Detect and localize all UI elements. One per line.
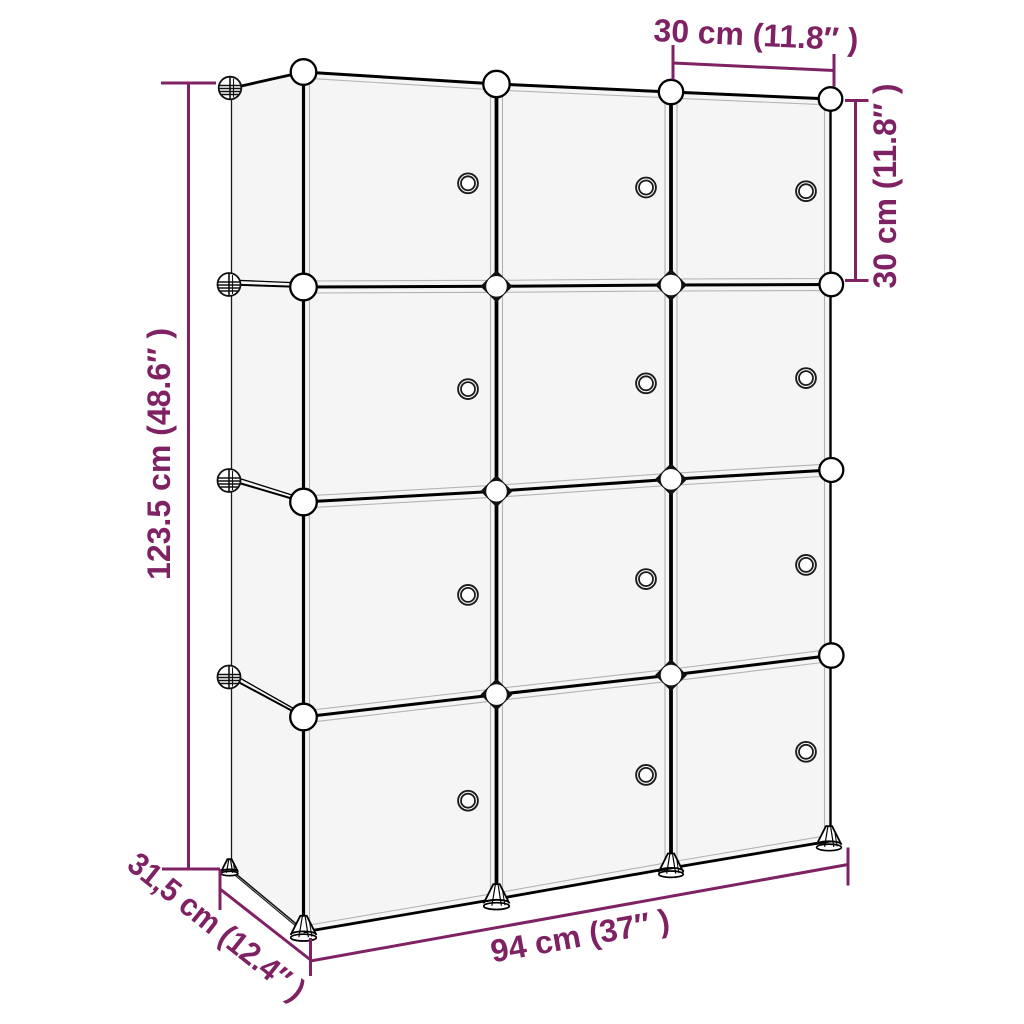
svg-text:123.5 cm (48.6″ ): 123.5 cm (48.6″ ) [141, 328, 177, 580]
svg-text:30 cm (11.8″ ): 30 cm (11.8″ ) [867, 84, 903, 289]
svg-text:30 cm (11.8″ ): 30 cm (11.8″ ) [653, 12, 859, 58]
